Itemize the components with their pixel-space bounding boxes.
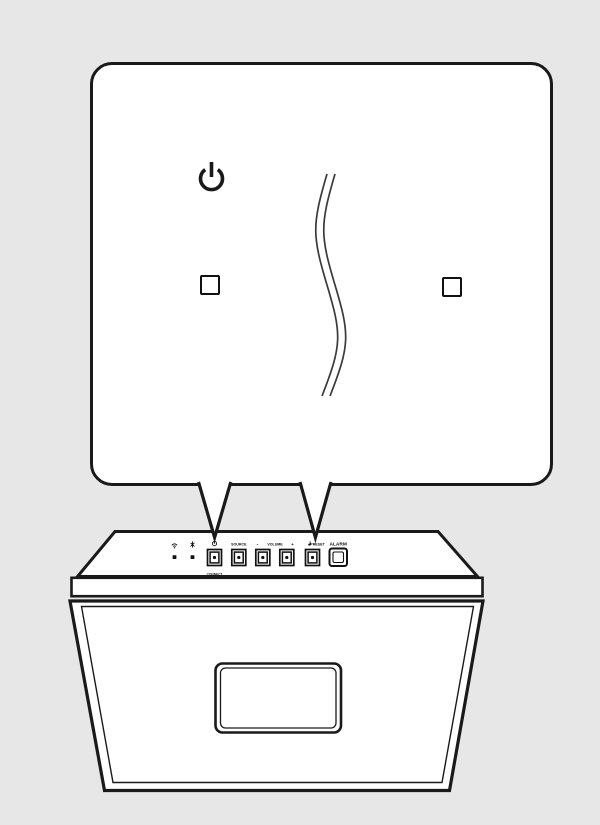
panel-label-preset: PRESET	[310, 542, 325, 546]
display-window	[216, 664, 342, 733]
panel-label-alarm: ALARM	[330, 542, 347, 548]
panel-label-volume: VOLUME	[267, 542, 283, 546]
button-center-key	[442, 277, 462, 297]
panel-label-volume-minus: -	[257, 541, 259, 547]
panel-label-source: SOURCE	[231, 542, 247, 546]
panel-button-source	[232, 550, 246, 566]
button-center-key	[200, 275, 220, 295]
device-body-inner-line	[82, 607, 474, 783]
wifi-icon	[172, 544, 177, 549]
panel-button-preset	[306, 550, 320, 566]
panel-label-volume-plus: +	[291, 542, 294, 547]
bluetooth-indicator-dot	[191, 555, 195, 559]
panel-label-connect: CONNECT	[207, 573, 223, 577]
wavy-break-mark	[300, 165, 360, 405]
bluetooth-icon	[191, 541, 195, 547]
device-top-panel	[78, 532, 478, 577]
manual-page: { "page": { "background_color": "#e7e7e7…	[0, 0, 600, 825]
wifi-indicator-dot	[173, 555, 177, 559]
panel-button-alarm	[330, 549, 348, 567]
mini-power-icon	[212, 540, 216, 545]
device-front-edge-band	[72, 578, 483, 596]
panel-button-power	[208, 550, 222, 566]
device-body	[70, 601, 483, 791]
callout-tail-right	[300, 482, 331, 538]
callout-tail-left	[199, 482, 231, 538]
panel-button-volume-down	[256, 550, 270, 566]
mini-note-icon	[308, 541, 310, 545]
power-icon	[194, 156, 230, 196]
display-window-inner	[221, 668, 337, 728]
panel-button-volume-up	[280, 550, 294, 566]
